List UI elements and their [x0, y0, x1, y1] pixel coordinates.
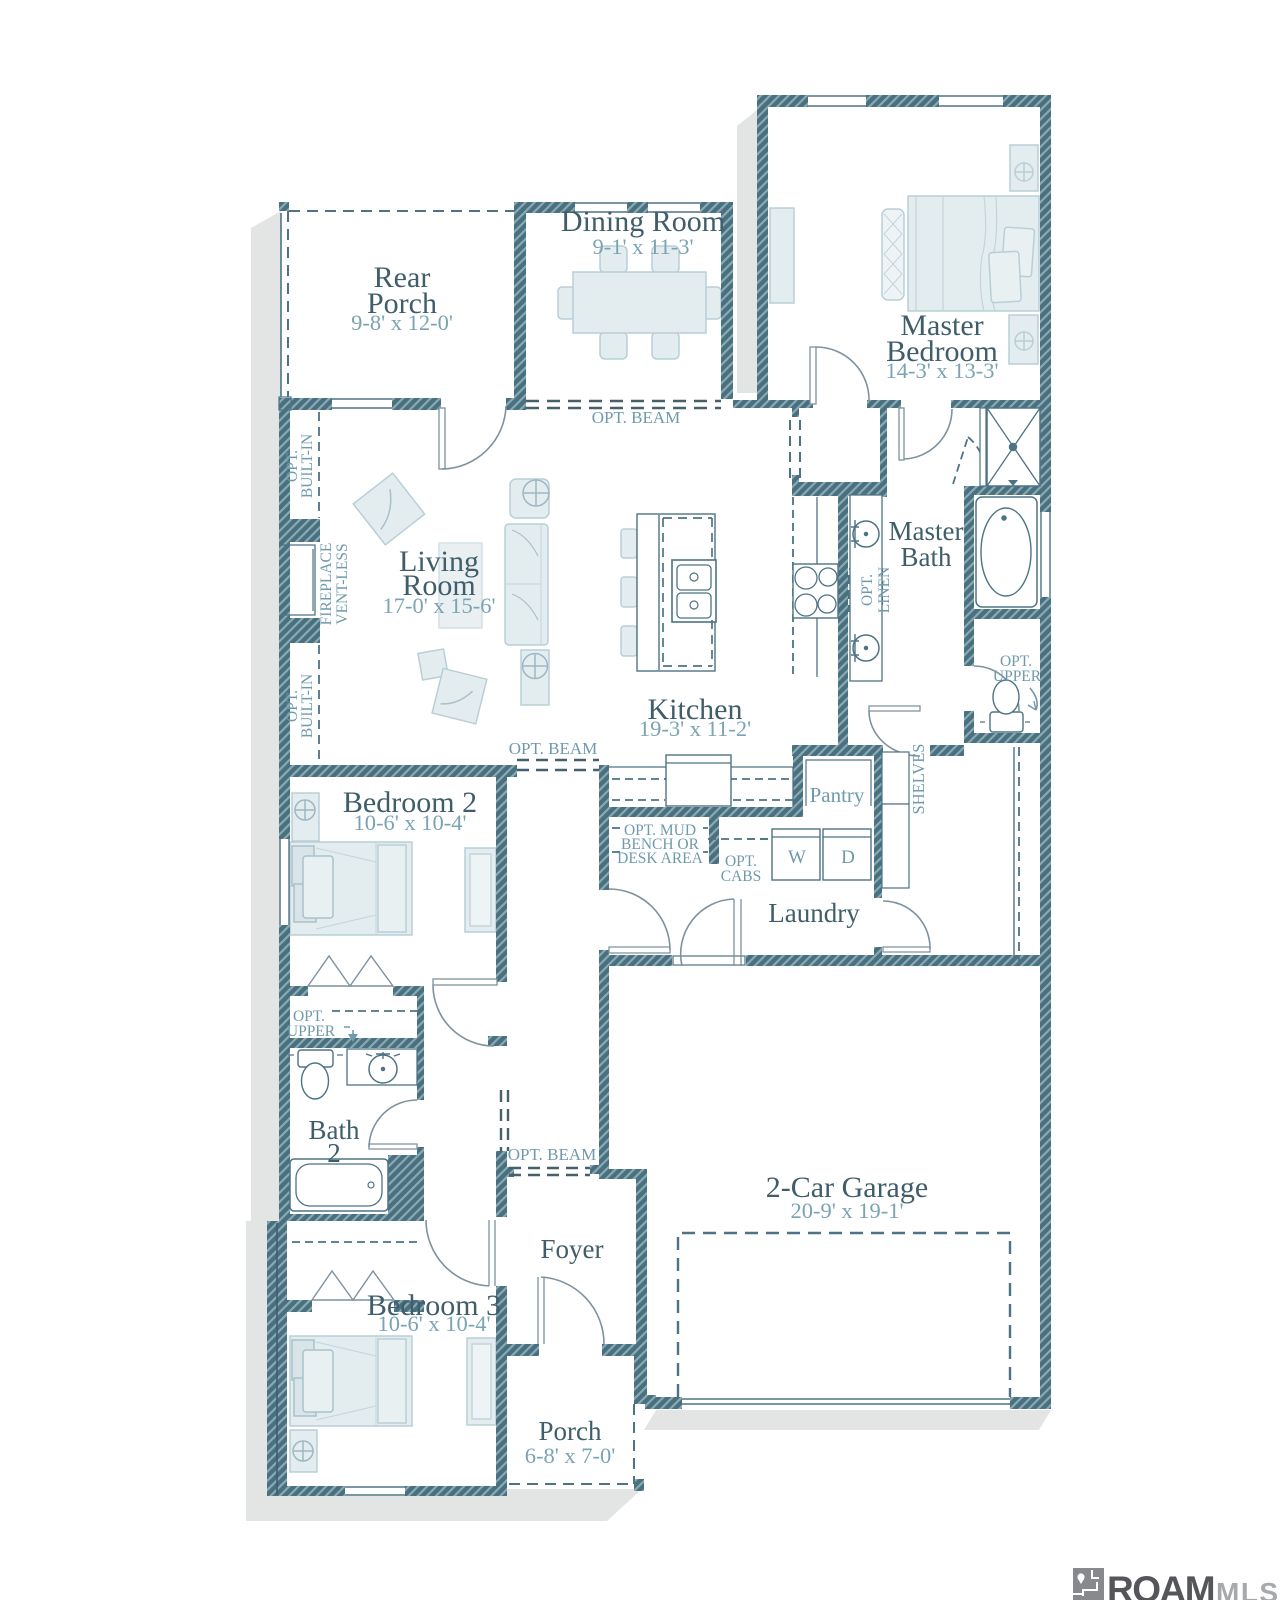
svg-text:9-1' x 11-3': 9-1' x 11-3' — [592, 234, 693, 259]
svg-text:SHELVES: SHELVES — [909, 744, 928, 815]
svg-text:20-9' x 19-1': 20-9' x 19-1' — [790, 1198, 903, 1223]
svg-text:9-8' x 12-0': 9-8' x 12-0' — [351, 310, 453, 335]
svg-text:14-3' x 13-3': 14-3' x 13-3' — [885, 358, 998, 383]
svg-text:LINEN: LINEN — [876, 567, 893, 614]
svg-text:10-6' x 10-4': 10-6' x 10-4' — [353, 810, 466, 835]
svg-text:Foyer: Foyer — [541, 1234, 604, 1264]
svg-text:OPT. BEAM: OPT. BEAM — [508, 1145, 596, 1164]
svg-text:BUILT-IN: BUILT-IN — [299, 674, 316, 738]
svg-text:DESK AREA: DESK AREA — [617, 850, 703, 867]
svg-text:17-0' x 15-6': 17-0' x 15-6' — [382, 593, 495, 618]
svg-text:10-6' x 10-4': 10-6' x 10-4' — [377, 1311, 490, 1336]
svg-text:OPT.: OPT. — [859, 574, 876, 606]
svg-text:FIREPLACE: FIREPLACE — [318, 543, 335, 626]
svg-text:D: D — [841, 847, 855, 868]
svg-text:2: 2 — [327, 1138, 341, 1168]
svg-text:MLS: MLS — [1216, 1577, 1280, 1600]
svg-text:Pantry: Pantry — [810, 783, 865, 807]
svg-text:UPPER: UPPER — [287, 1023, 336, 1040]
svg-text:VENT-LESS: VENT-LESS — [334, 543, 351, 624]
svg-text:Bath: Bath — [901, 542, 952, 572]
svg-text:W: W — [788, 847, 806, 868]
svg-text:Laundry: Laundry — [768, 898, 860, 928]
svg-text:OPT. BEAM: OPT. BEAM — [509, 739, 597, 758]
svg-text:CABS: CABS — [721, 868, 762, 885]
svg-text:Porch: Porch — [539, 1416, 602, 1446]
svg-text:BUILT-IN: BUILT-IN — [299, 434, 316, 498]
svg-text:19-3' x 11-2': 19-3' x 11-2' — [639, 716, 751, 741]
svg-text:OPT. BEAM: OPT. BEAM — [592, 408, 680, 427]
svg-text:UPPER: UPPER — [993, 668, 1042, 685]
svg-text:ROAM: ROAM — [1107, 1569, 1214, 1600]
svg-text:6-8' x 7-0': 6-8' x 7-0' — [525, 1443, 616, 1468]
